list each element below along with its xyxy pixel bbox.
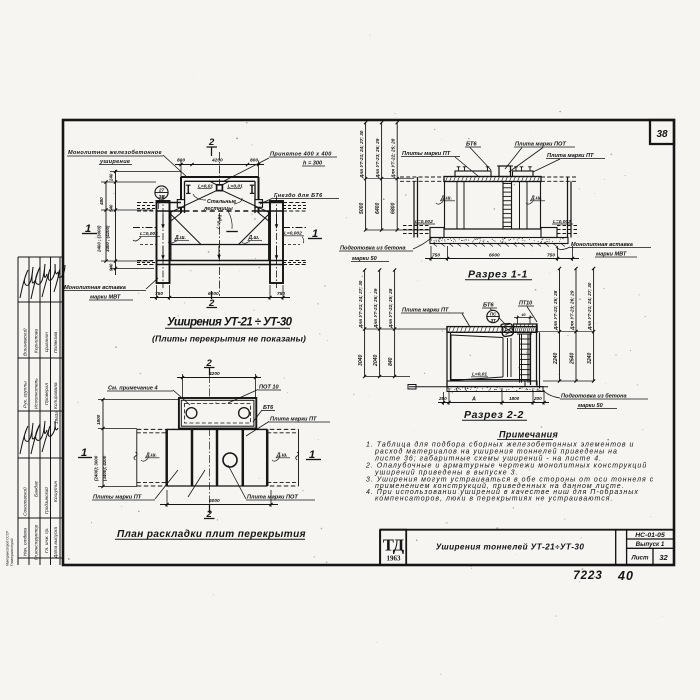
svg-text:750: 750 (155, 291, 163, 297)
svg-text:Плита марки ПОТ: Плита марки ПОТ (515, 142, 566, 148)
svg-text:Корнилова: Корнилова (34, 329, 40, 353)
svg-text:БТ6: БТ6 (483, 303, 494, 309)
svg-text:27: 27 (158, 188, 165, 194)
svg-text:5000: 5000 (359, 203, 365, 214)
svg-text:Плита марки ПОТ: Плита марки ПОТ (247, 495, 298, 501)
svg-text:38: 38 (656, 129, 668, 140)
svg-text:марки 50: марки 50 (578, 403, 604, 409)
svg-text:Разрез 1-1: Разрез 1-1 (468, 269, 528, 281)
svg-text:Цыганин: Цыганин (44, 332, 50, 352)
svg-text:750: 750 (277, 291, 285, 297)
svg-text:Плиты марки ПТ: Плиты марки ПТ (402, 151, 451, 157)
svg-text:Для УТ-22; 25; 28: Для УТ-22; 25; 28 (391, 138, 396, 179)
svg-text:6000: 6000 (489, 253, 500, 259)
svg-text:2540: 2540 (570, 353, 576, 365)
svg-text:Бандас: Бандас (34, 480, 40, 497)
svg-text:h = 300: h = 300 (303, 161, 323, 167)
svg-text:200: 200 (533, 396, 542, 401)
svg-text:2. Опалубочные и арматурные: 2. Опалубочные и арматурные чертежи моно… (365, 462, 647, 470)
svg-text:уширений приведены в выпуск: уширений приведены в выпуске 3. (374, 469, 518, 477)
svg-text:1800: 1800 (509, 396, 520, 401)
svg-text:компенсаторов, люки в перек: компенсаторов, люки в перекрытиях не уст… (375, 496, 613, 503)
svg-text:Вишневский: Вишневский (22, 328, 29, 356)
svg-text:Копировала: Копировала (53, 382, 59, 409)
svg-text:2400 ; (3000): 2400 ; (3000) (97, 225, 102, 253)
svg-text:3040: 3040 (358, 355, 364, 366)
svg-text:Гл. инж. пр.: Гл. инж. пр. (44, 527, 50, 553)
svg-text:Для УТ-23; 26; 29: Для УТ-23; 26; 29 (375, 138, 380, 179)
svg-text:6400: 6400 (375, 203, 381, 214)
svg-text:240: 240 (109, 173, 114, 182)
svg-text:Для УТ-21; 24; 27; 30: Для УТ-21; 24; 27; 30 (358, 280, 363, 329)
svg-text:Стальные: Стальные (207, 199, 236, 205)
svg-text:Гнездо для БТ6: Гнездо для БТ6 (274, 193, 323, 199)
svg-text:Исполнитель: Исполнитель (34, 378, 40, 409)
svg-text:Подготовка из бетона: Подготовка из бетона (340, 245, 406, 252)
svg-text:ЗТ: ЗТ (490, 318, 496, 323)
svg-text:Разрез 2-2: Разрез 2-2 (464, 409, 524, 421)
svg-text:марки МВТ: марки МВТ (596, 252, 627, 258)
svg-text:ПТ10: ПТ10 (519, 301, 532, 307)
svg-text:расход материалов на уширен: расход материалов на уширения тоннелей п… (374, 448, 618, 456)
svg-text:840: 840 (388, 357, 394, 366)
svg-text:Полякова: Полякова (53, 331, 59, 353)
svg-text:Уширения УТ-21 ÷ УТ-30: Уширения УТ-21 ÷ УТ-30 (167, 317, 293, 329)
svg-text:Для УТ-21; 24; 27; 30: Для УТ-21; 24; 27; 30 (359, 130, 364, 179)
svg-text:32: 32 (659, 553, 668, 562)
svg-text:480: 480 (99, 197, 104, 206)
svg-text:1963: 1963 (387, 555, 402, 563)
svg-text:(3400); 4200: (3400); 4200 (102, 455, 107, 481)
svg-text:750: 750 (547, 253, 555, 259)
svg-text:6000: 6000 (209, 498, 220, 504)
svg-text:40: 40 (617, 569, 634, 583)
svg-text:(Плиты перекрытия не показа: (Плиты перекрытия не показаны) (152, 334, 306, 344)
svg-text:Выпуск 1: Выпуск 1 (636, 541, 665, 548)
svg-text:Для УТ-22; 25; 28: Для УТ-22; 25; 28 (553, 290, 558, 331)
svg-text:План раскладки плит перекры: План раскладки плит перекрытия (117, 529, 306, 540)
svg-text:лестницы: лестницы (203, 206, 233, 212)
svg-text:Монолитная вставка: Монолитная вставка (571, 242, 633, 248)
svg-text:ПС: ПС (490, 312, 497, 317)
svg-text:Кошутин: Кошутин (53, 480, 59, 502)
svg-text:Гл.конструктор: Гл.конструктор (34, 524, 39, 560)
svg-text:Нач. отдела: Нач. отдела (23, 528, 29, 556)
svg-text:ПОТ 10: ПОТ 10 (259, 385, 279, 391)
svg-text:(2400); 3000: (2400); 3000 (94, 455, 99, 481)
svg-text:800: 800 (250, 158, 258, 164)
svg-text:Соколовский: Соколовский (22, 487, 29, 516)
svg-text:750: 750 (432, 253, 440, 259)
svg-text:Принятое 400 х 400: Принятое 400 х 400 (270, 152, 332, 158)
svg-text:Главтрансстрой: Главтрансстрой (10, 538, 14, 566)
svg-text:800: 800 (177, 158, 185, 164)
svg-text:2: 2 (208, 137, 215, 148)
svg-text:листе 36; габаритные схемы: листе 36; габаритные схемы уширений - на… (374, 455, 602, 463)
svg-text:6800: 6800 (391, 203, 397, 214)
svg-text:марки 50: марки 50 (352, 256, 378, 262)
svg-text:3400 ; (4200): 3400 ; (4200) (105, 225, 110, 252)
svg-text:Подготовка из бетона: Подготовка из бетона (561, 393, 627, 400)
svg-text:Проверил: Проверил (44, 383, 50, 405)
svg-text:НС-01-05: НС-01-05 (635, 532, 665, 539)
svg-text:Уширения тоннелей УТ-21÷УТ-30: Уширения тоннелей УТ-21÷УТ-30 (436, 543, 585, 552)
svg-text:Рук. группы: Рук. группы (23, 381, 29, 408)
svg-text:Примечания: Примечания (499, 430, 559, 440)
svg-text:940: 940 (109, 263, 114, 271)
svg-text:Плита марки ПТ: Плита марки ПТ (547, 153, 594, 159)
svg-text:Монолитная вставка: Монолитная вставка (64, 285, 126, 291)
svg-text:Минтрансстрой СССР: Минтрансстрой СССР (6, 530, 10, 566)
svg-text:4200: 4200 (211, 158, 223, 164)
svg-text:Гродзинский: Гродзинский (43, 487, 49, 514)
svg-text:3240: 3240 (587, 353, 593, 364)
svg-text:540: 540 (109, 204, 114, 212)
svg-text:БТ6: БТ6 (466, 142, 477, 148)
svg-text:2040: 2040 (373, 355, 379, 367)
svg-text:1800: 1800 (96, 414, 101, 425)
svg-text:марки МВТ: марки МВТ (90, 295, 121, 301)
svg-text:ЗИ: ЗИ (159, 194, 166, 199)
svg-text:Для УТ-23; 26; 29: Для УТ-23; 26; 29 (570, 290, 575, 331)
svg-text:Плита марки ПТ: Плита марки ПТ (270, 417, 317, 423)
svg-text:См. примечание 4: См. примечание 4 (108, 386, 158, 392)
svg-text:Монолитное железобетонное: Монолитное железобетонное (68, 149, 162, 156)
svg-text:БТ6: БТ6 (263, 405, 274, 411)
svg-text:Плита марки ПТ: Плита марки ПТ (402, 308, 449, 314)
svg-text:уширение: уширение (99, 159, 130, 165)
svg-text:L=0,01: L=0,01 (216, 214, 223, 229)
svg-text:Дата выпуска: Дата выпуска (53, 527, 58, 559)
svg-text:6000: 6000 (208, 291, 219, 297)
svg-text:Плиты марки ПТ: Плиты марки ПТ (93, 495, 142, 501)
svg-text:250: 250 (438, 396, 447, 401)
svg-text:7223: 7223 (573, 570, 603, 582)
svg-text:1. Таблица для подбора сбор: 1. Таблица для подбора сборных железобет… (366, 441, 634, 449)
svg-text:А: А (471, 397, 476, 403)
svg-text:ТД: ТД (383, 536, 405, 555)
svg-text:Для УТ-21; 24; 27; 30: Для УТ-21; 24; 27; 30 (587, 282, 592, 331)
svg-text:Для УТ-22; 25; 28: Для УТ-22; 25; 28 (388, 288, 393, 329)
svg-text:Лист: Лист (631, 555, 649, 562)
svg-text:Для УТ-23; 26; 29: Для УТ-23; 26; 29 (373, 288, 378, 329)
svg-text:40: 40 (521, 313, 526, 317)
svg-text:2240: 2240 (553, 353, 559, 365)
